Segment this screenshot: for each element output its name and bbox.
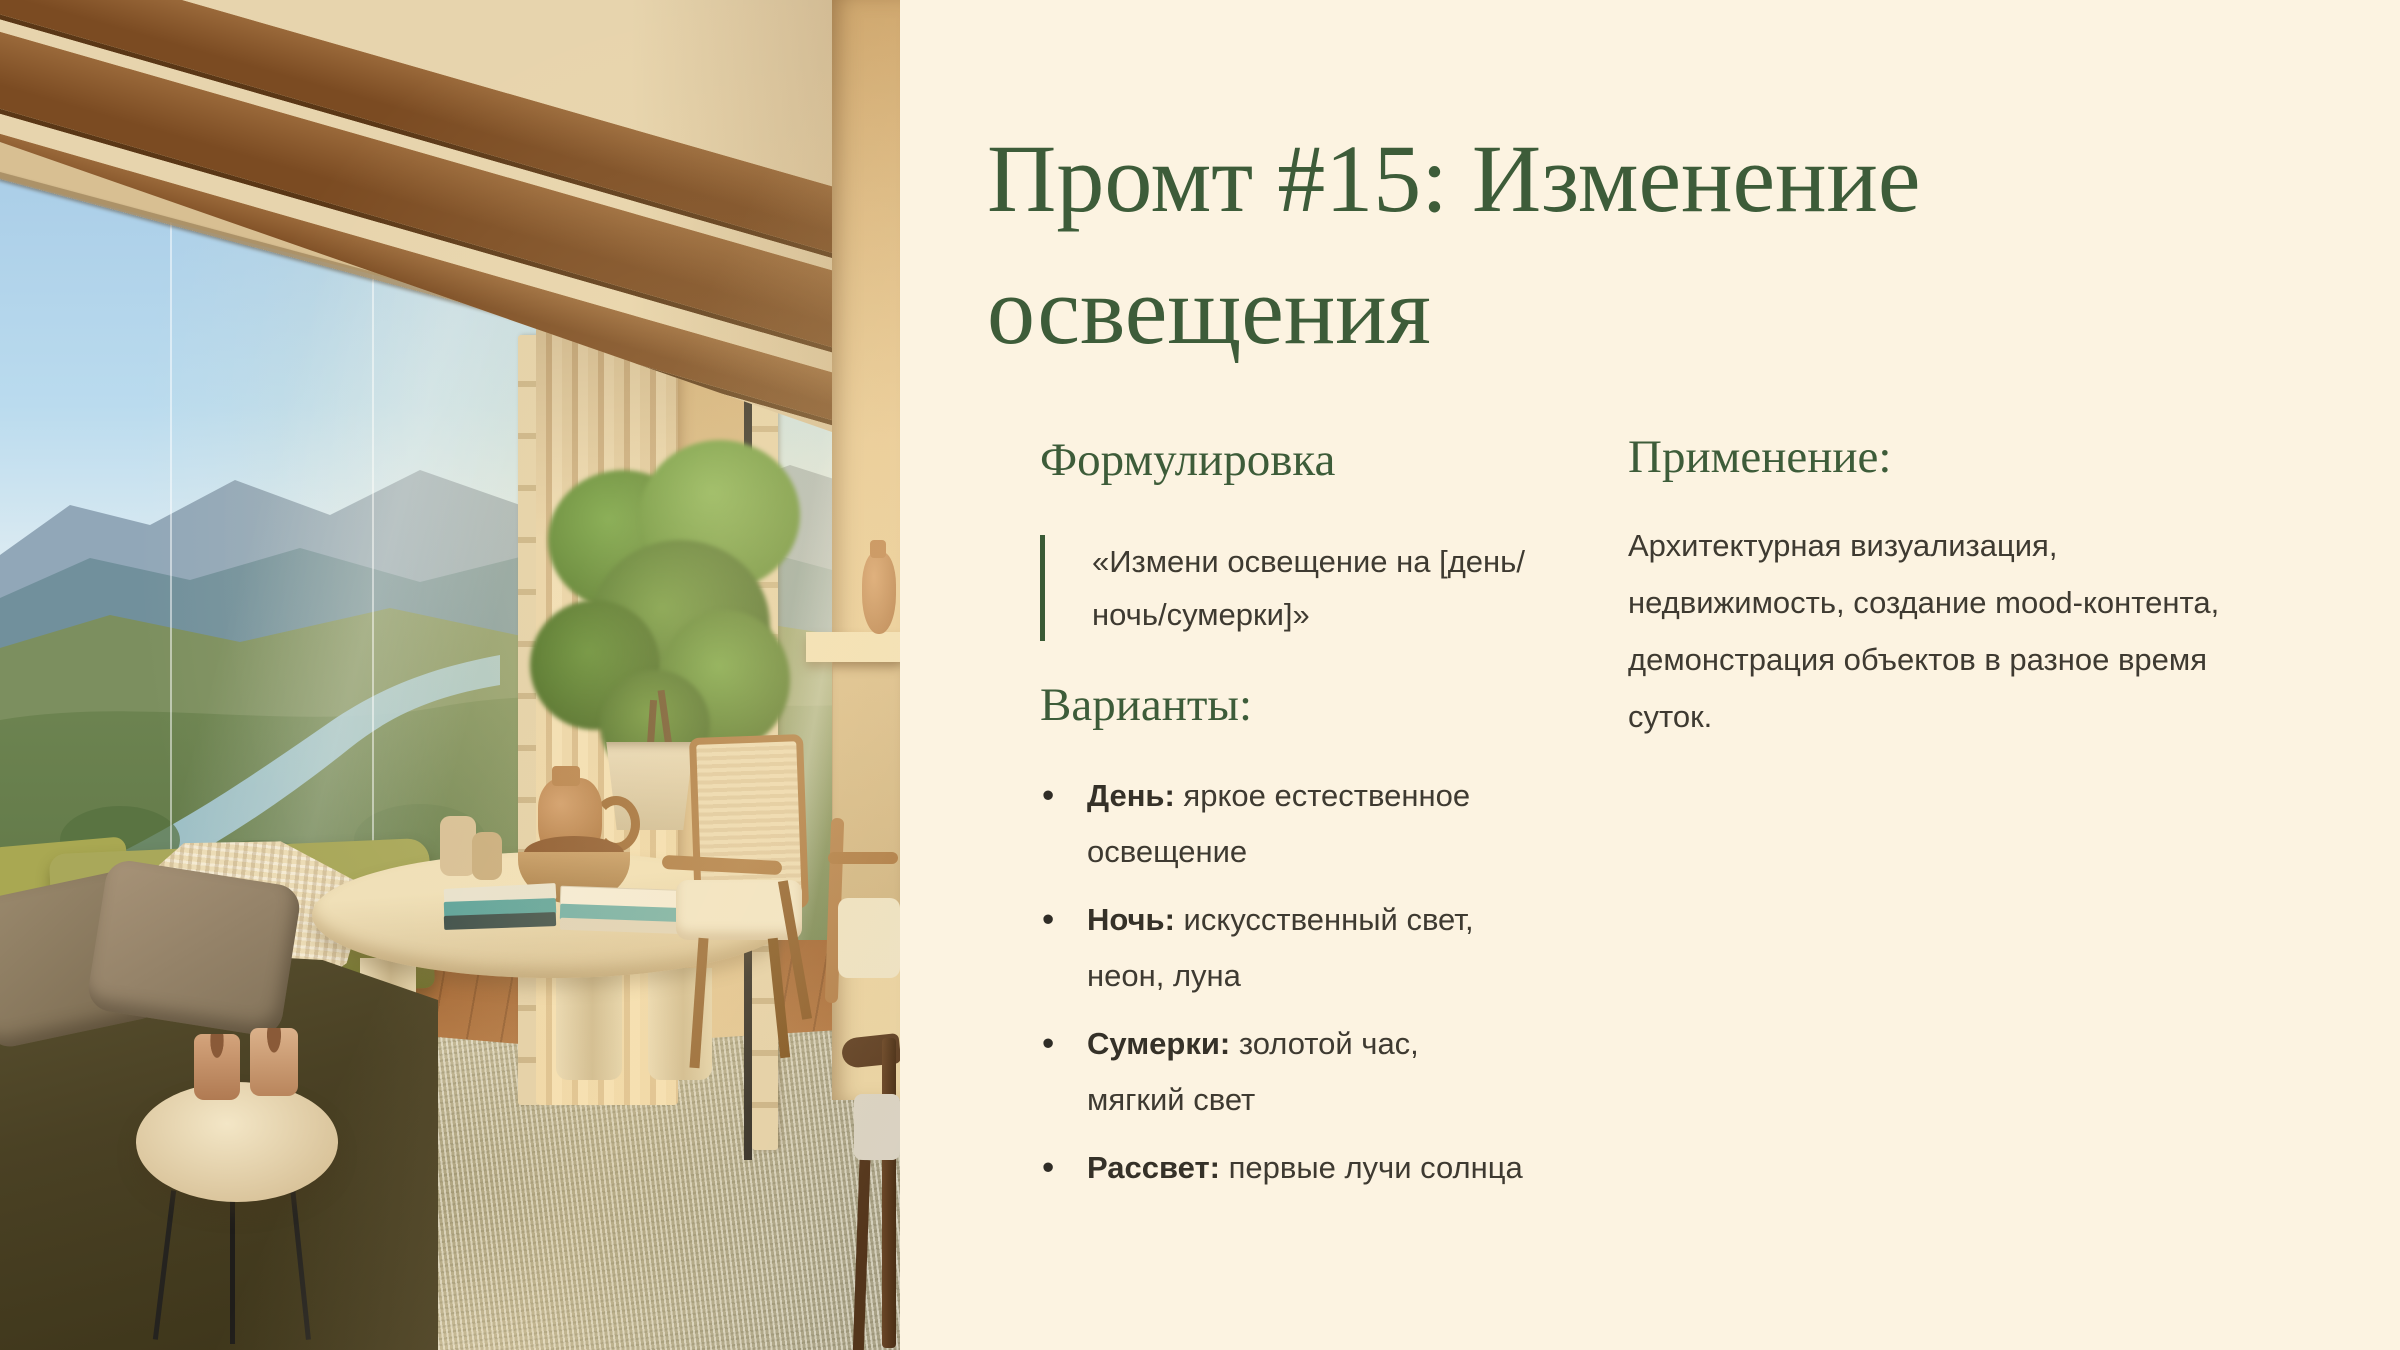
armchair-leg (768, 938, 790, 1058)
chair-post (882, 1038, 896, 1348)
slide: Промт #15: Изменение освещения Формулиро… (0, 0, 2400, 1350)
variant-term: Сумерки: (1087, 1026, 1230, 1061)
application-heading: Применение: (1628, 427, 1891, 488)
variant-text-line2: освещение (1087, 834, 1247, 869)
armchair-right (828, 818, 900, 1018)
bullet-icon: • (1042, 768, 1054, 824)
variant-text: золотой час, (1230, 1026, 1419, 1061)
armchair-arm (828, 852, 898, 864)
variants-heading: Варианты: (1040, 675, 1252, 736)
armchair (676, 730, 816, 1100)
side-table-leg (230, 1196, 235, 1344)
wooden-chair (842, 1032, 900, 1350)
living-room-photo (0, 0, 900, 1350)
list-item: • Сумерки: золотой час, мягкий свет (1040, 1016, 1560, 1128)
variant-text-line2: мягкий свет (1087, 1082, 1255, 1117)
ceramic-vessel (472, 832, 502, 880)
side-table (136, 1082, 338, 1202)
prompt-quote-line: «Измени освещение на [день/ (1092, 544, 1525, 579)
cup (194, 1034, 240, 1100)
terracotta-vase-neck (870, 540, 886, 558)
list-item: • Ночь: искусственный свет, неон, луна (1040, 892, 1560, 1004)
variant-term: День: (1087, 778, 1175, 813)
page-title: Промт #15: Изменение освещения (987, 113, 2107, 377)
list-item: • День: яркое естественное освещение (1040, 768, 1560, 880)
cup (250, 1028, 298, 1096)
book-stack (560, 888, 690, 938)
terracotta-vase (862, 552, 896, 634)
sofa-pillow (85, 858, 302, 1039)
bullet-icon: • (1042, 1140, 1054, 1196)
terracotta-jug-neck (552, 766, 580, 786)
armchair-leg (689, 938, 708, 1068)
application-text: Архитектурная визуализация, недвижимость… (1628, 517, 2243, 745)
coffee-table-leg (556, 962, 622, 1080)
bullet-icon: • (1042, 1016, 1054, 1072)
variant-term: Ночь: (1087, 902, 1175, 937)
chair-cushion (854, 1094, 900, 1160)
variant-text: искусственный свет, (1175, 902, 1474, 937)
prompt-quote-line: ночь/сумерки]» (1092, 597, 1310, 632)
prompt-quote: «Измени освещение на [день/ ночь/сумерки… (1040, 535, 1612, 641)
variants-list: • День: яркое естественное освещение • Н… (1040, 768, 1560, 1208)
chair-leg (853, 1160, 871, 1350)
variant-text-line2: неон, луна (1087, 958, 1241, 993)
content-panel: Промт #15: Изменение освещения Формулиро… (900, 0, 2400, 1350)
bullet-icon: • (1042, 892, 1054, 948)
armchair-cushion (838, 898, 900, 978)
fireplace-mantel (806, 632, 900, 662)
variant-text: яркое естественное (1175, 778, 1470, 813)
list-item: • Рассвет: первые лучи солнца (1040, 1140, 1560, 1196)
book-stack (444, 886, 556, 934)
book (444, 912, 556, 930)
formulation-heading: Формулировка (1040, 430, 1335, 491)
variant-term: Рассвет: (1087, 1150, 1220, 1185)
variant-text: первые лучи солнца (1220, 1150, 1523, 1185)
ceramic-vessel (440, 816, 476, 876)
